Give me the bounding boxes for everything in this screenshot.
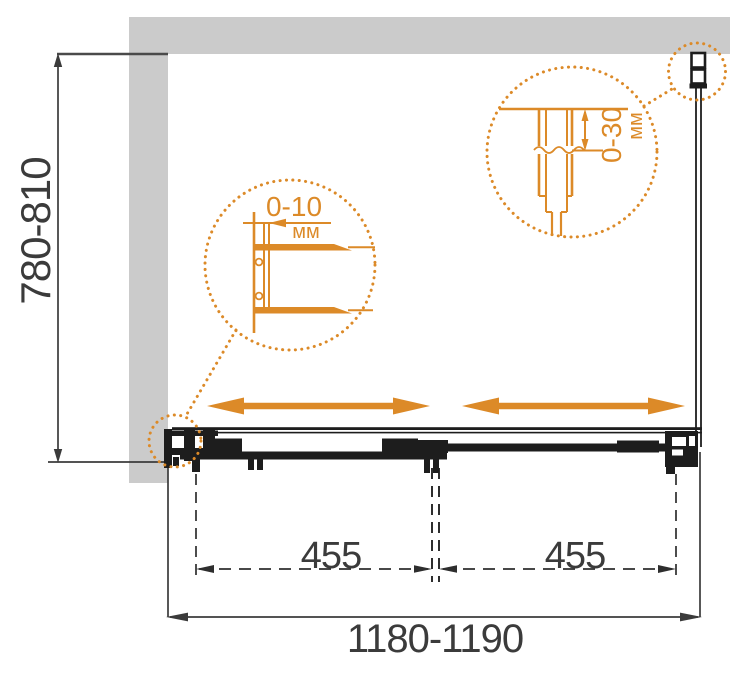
height-dimension-lines [48,53,168,463]
wall-profile-adjustment-value: 0-10 [266,193,322,221]
right-callout-leader [644,89,672,106]
width-dimension-lines [166,452,702,621]
door-right-travel-label: 455 [545,537,605,575]
dimension-diagram: 780-810 1180-1190 455 455 0-10 мм 0-30 м… [0,0,750,681]
door-left-travel-label: 455 [301,537,361,575]
track-assembly-drawing [164,427,702,474]
right-post-drawing [690,53,708,447]
width-dimension-label: 1180-1190 [347,619,523,659]
slide-direction-arrows [207,398,685,415]
height-dimension-label: 780-810 [15,157,57,304]
top-bracket-adjustment-unit: мм [626,112,646,140]
wall-profile-adjustment-unit: мм [292,222,320,242]
top-bracket-adjustment-value: 0-30 [598,107,626,163]
diagram-linework [0,0,750,681]
